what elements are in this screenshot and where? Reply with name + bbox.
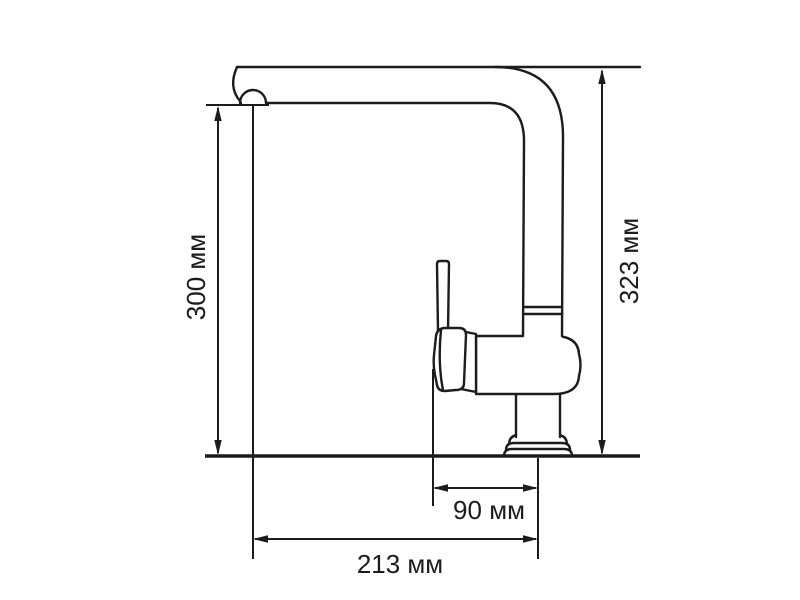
spout-bottom-outline (266, 103, 524, 336)
dim-90-arrow-right (523, 484, 538, 491)
dim-label-300: 300 мм (181, 234, 211, 320)
dim-300-arrow-down (214, 440, 221, 455)
dimension-drawing-canvas: 300 мм 323 мм 90 мм 213 мм (0, 0, 800, 600)
dim-label-213: 213 мм (357, 549, 443, 579)
dim-label-90: 90 мм (453, 495, 525, 525)
dim-213-arrow-left (253, 535, 268, 542)
dimension-labels: 300 мм 323 мм 90 мм 213 мм (181, 218, 644, 579)
faucet-dimension-diagram: 300 мм 323 мм 90 мм 213 мм (0, 0, 800, 600)
handle-lever (437, 261, 449, 331)
dim-90-arrow-left (433, 484, 448, 491)
dim-213-arrow-right (523, 535, 538, 542)
base-cylinder-fill (516, 388, 560, 437)
dim-300-arrow-up (214, 106, 221, 121)
dim-label-323: 323 мм (614, 218, 644, 304)
dim-323-arrow-down (598, 440, 605, 455)
dim-323-arrow-up (598, 69, 605, 84)
handle-base (434, 328, 466, 391)
faucet-outline (233, 67, 640, 456)
dimension-annotations (205, 69, 640, 559)
